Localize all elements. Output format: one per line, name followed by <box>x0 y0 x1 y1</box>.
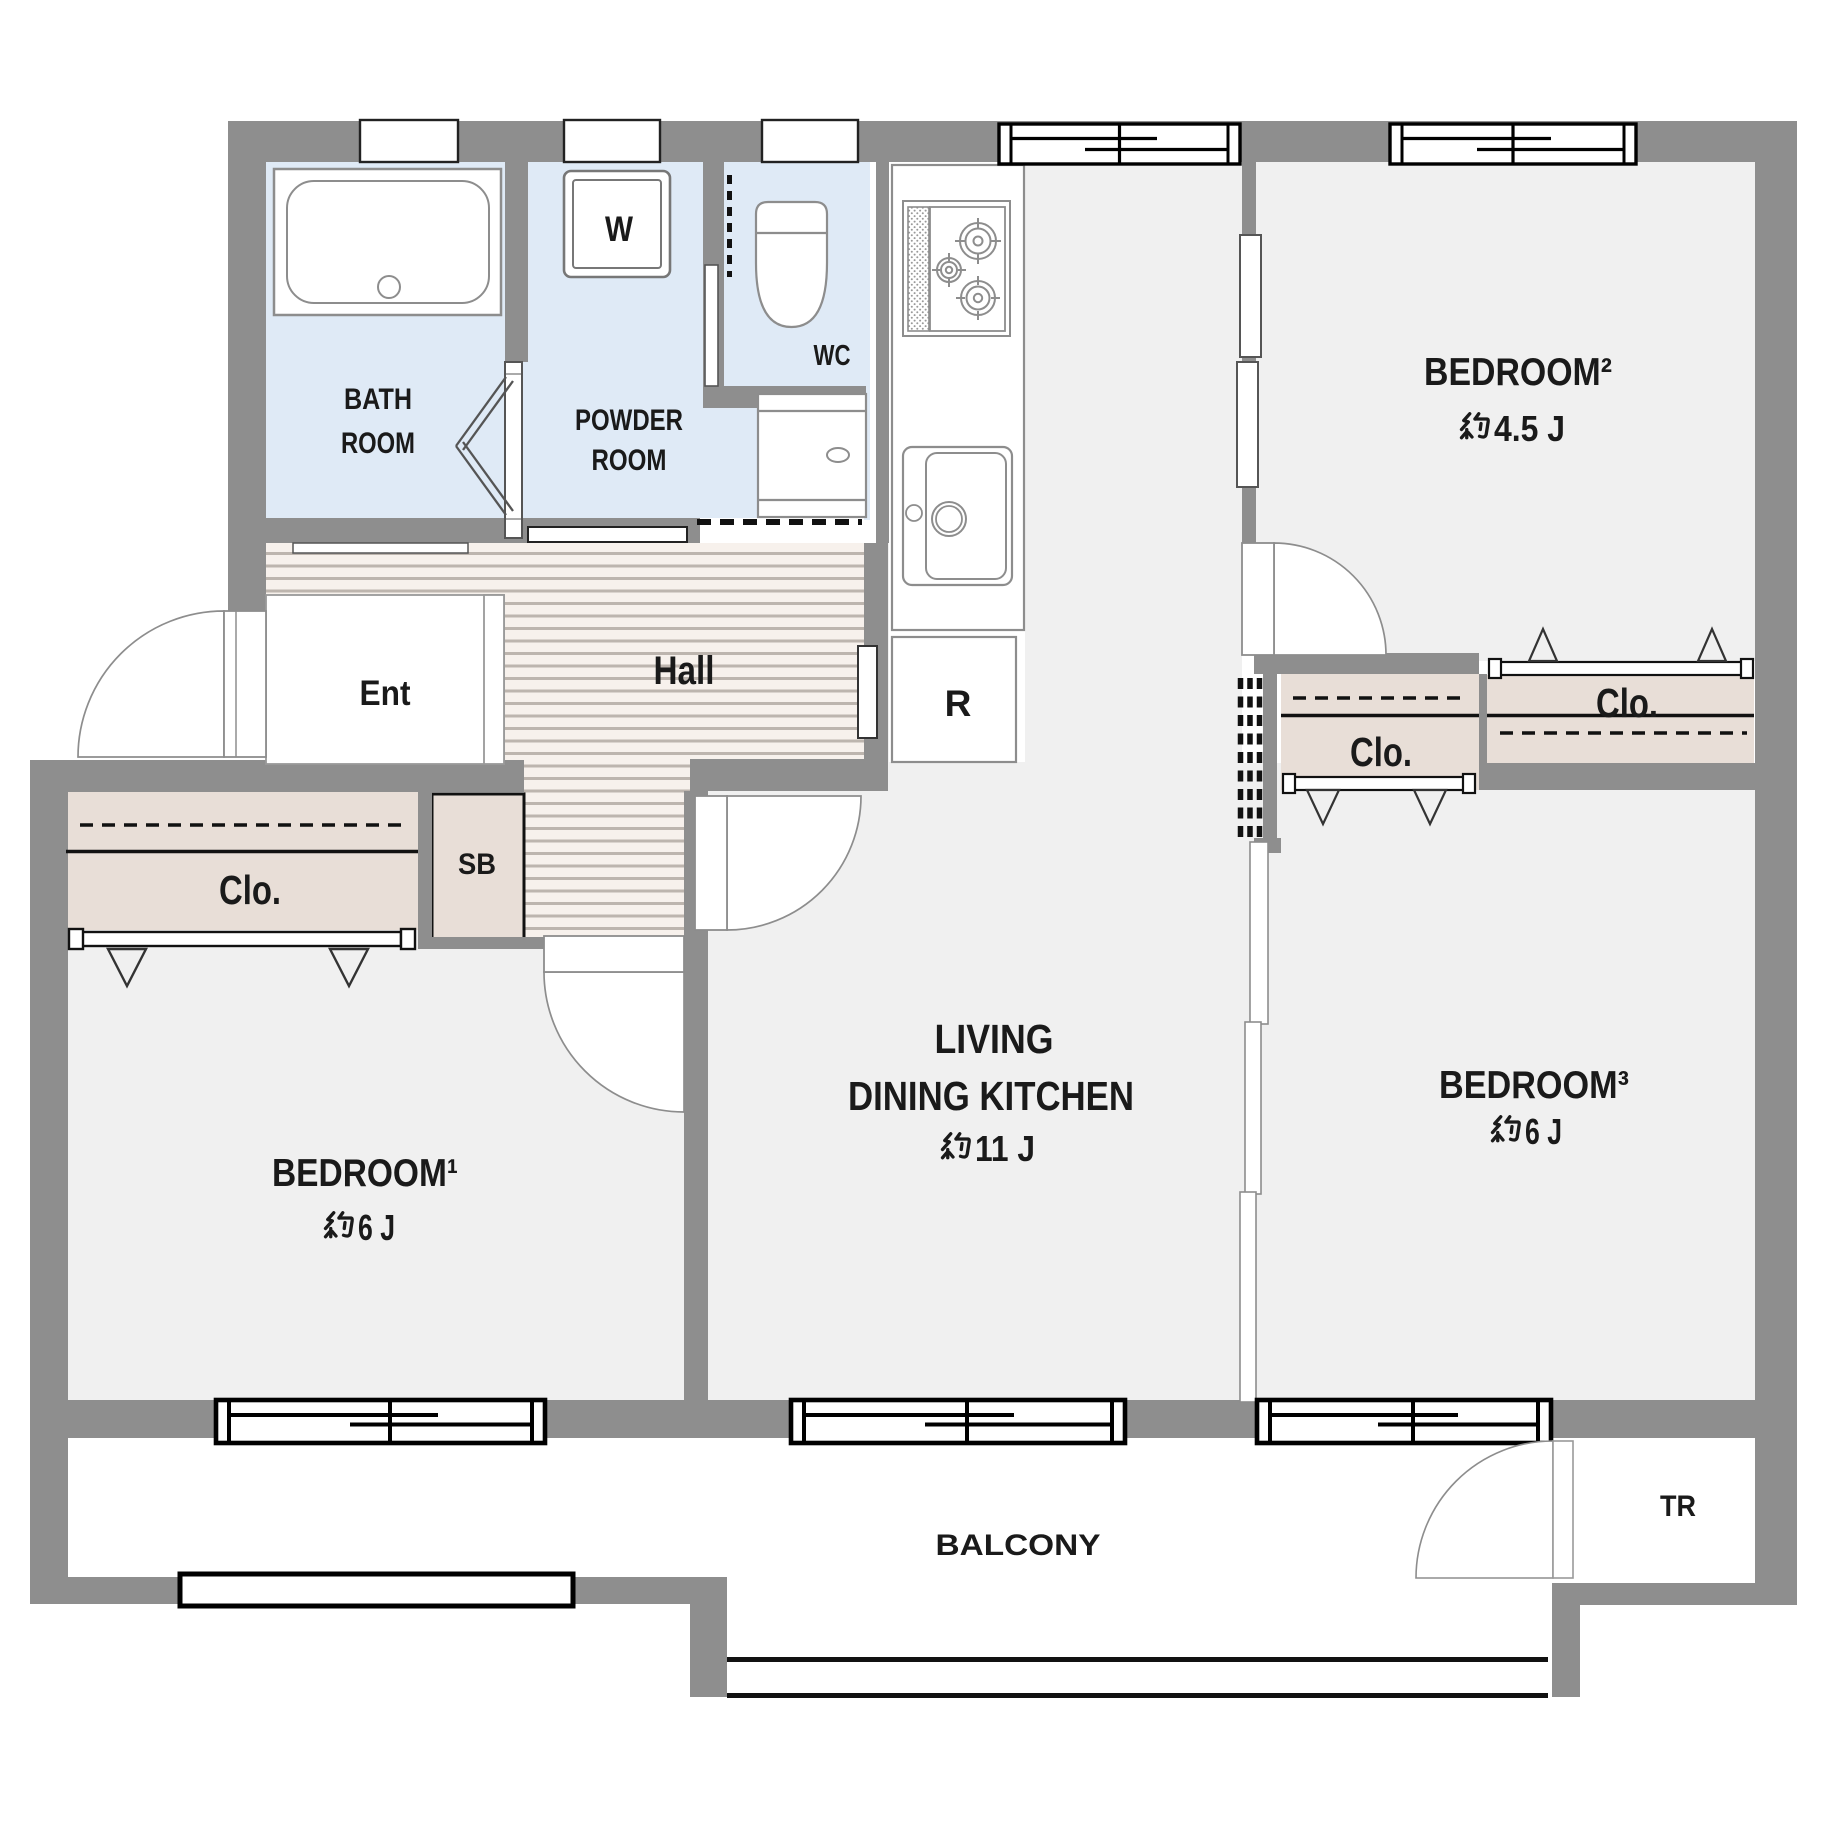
svg-text:SB: SB <box>458 848 496 881</box>
svg-text:Ent: Ent <box>360 674 411 713</box>
svg-text:BATH: BATH <box>344 383 412 416</box>
svg-text:POWDER: POWDER <box>575 404 683 437</box>
svg-text:Clo.: Clo. <box>1596 680 1658 726</box>
svg-text:ROOM: ROOM <box>341 427 415 460</box>
svg-text:WC: WC <box>814 340 851 372</box>
svg-text:R: R <box>945 683 972 724</box>
svg-text:DINING KITCHEN: DINING KITCHEN <box>848 1073 1134 1119</box>
svg-text:Clo.: Clo. <box>219 867 281 913</box>
svg-text:11 J: 11 J <box>975 1128 1035 1169</box>
svg-text:BALCONY: BALCONY <box>936 1529 1101 1562</box>
svg-text:TR: TR <box>1660 1490 1696 1523</box>
svg-text:6 J: 6 J <box>358 1207 395 1248</box>
svg-text:LIVING: LIVING <box>935 1016 1054 1062</box>
svg-text:W: W <box>605 210 633 249</box>
svg-text:Clo.: Clo. <box>1350 729 1412 775</box>
svg-text:4.5 J: 4.5 J <box>1494 408 1565 449</box>
svg-text:Hall: Hall <box>654 649 715 693</box>
svg-text:ROOM: ROOM <box>592 444 667 477</box>
svg-text:BEDROOM³: BEDROOM³ <box>1439 1064 1629 1107</box>
svg-text:BEDROOM²: BEDROOM² <box>1424 351 1612 394</box>
svg-text:BEDROOM¹: BEDROOM¹ <box>272 1152 458 1195</box>
svg-text:6 J: 6 J <box>1525 1111 1562 1152</box>
